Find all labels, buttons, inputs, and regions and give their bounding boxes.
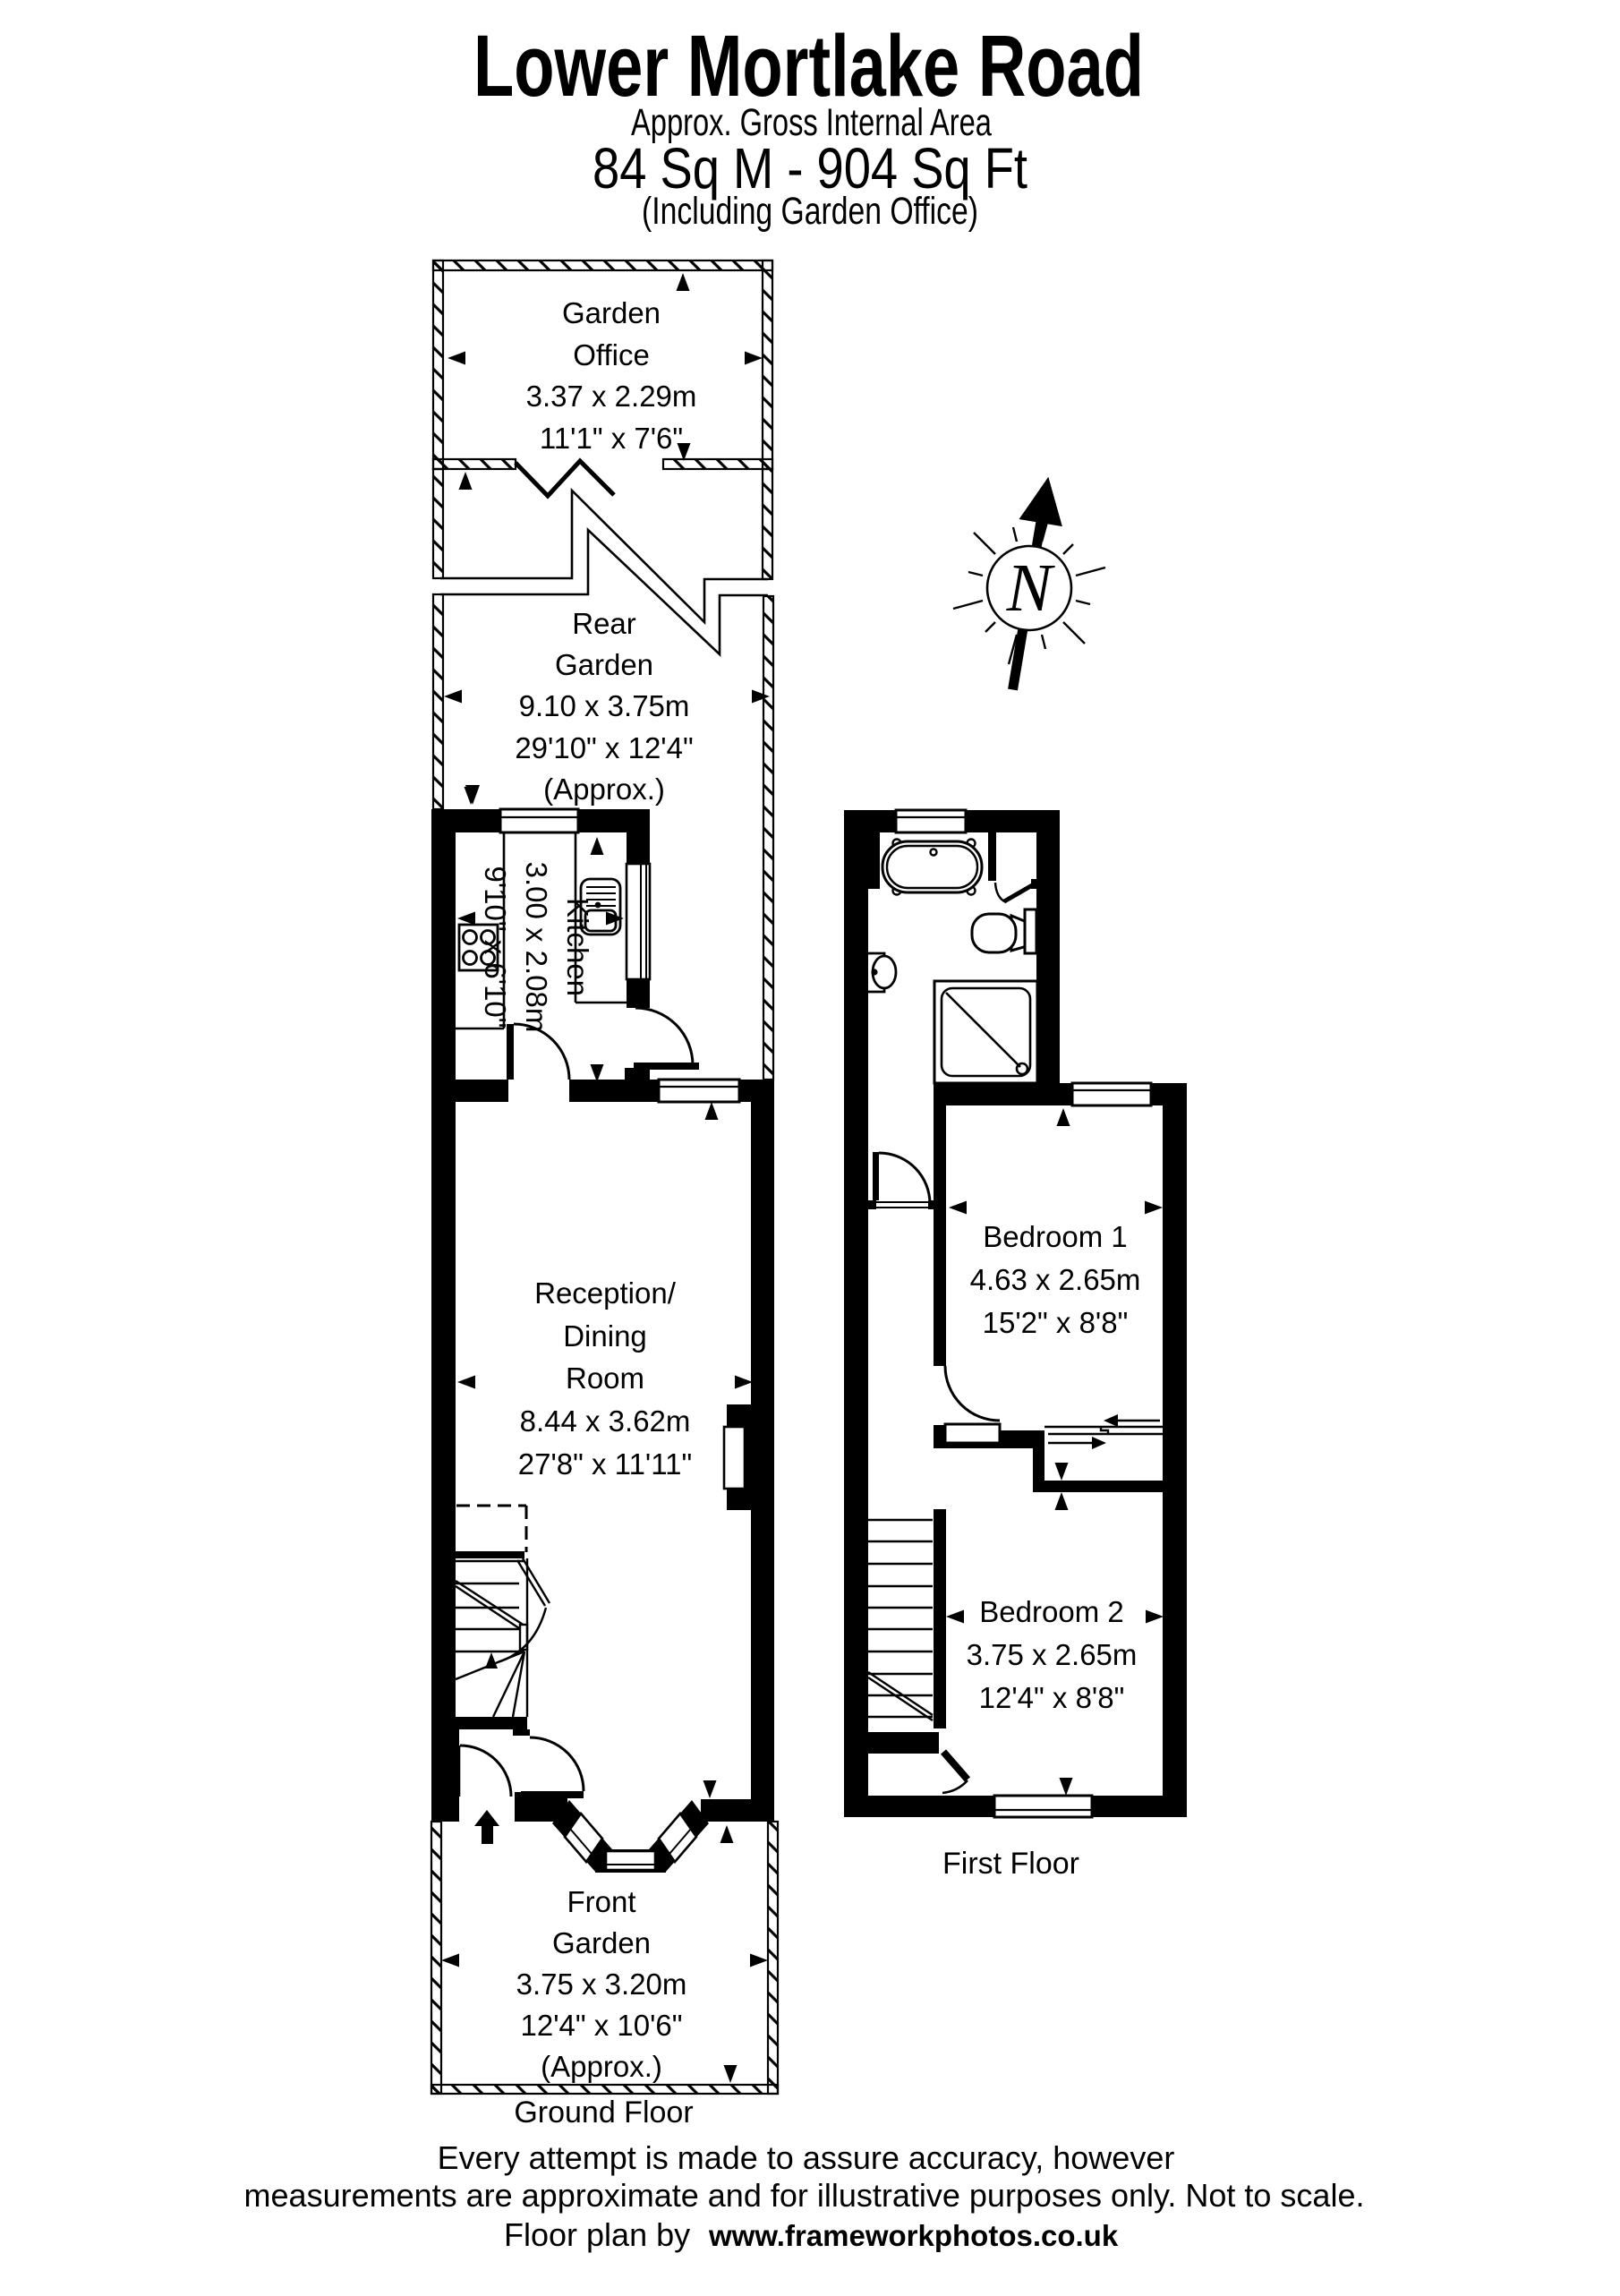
svg-text:(Approx.): (Approx.) (543, 772, 665, 806)
svg-text:Ground Floor: Ground Floor (514, 2095, 693, 2130)
svg-text:Floor plan by: Floor plan by (504, 2216, 690, 2253)
svg-text:measurements are approximate a: measurements are approximate and for ill… (244, 2177, 1365, 2214)
svg-text:First Floor: First Floor (942, 1847, 1079, 1881)
svg-text:Front: Front (567, 1885, 635, 1918)
svg-text:(Approx.): (Approx.) (541, 2050, 662, 2083)
svg-text:27'8" x 11'11": 27'8" x 11'11" (518, 1447, 692, 1481)
svg-text:3.75 x 3.20m: 3.75 x 3.20m (516, 1967, 687, 2001)
svg-text:Garden: Garden (562, 296, 661, 329)
svg-text:3.37 x 2.29m: 3.37 x 2.29m (526, 380, 697, 413)
svg-text:(Including Garden Office): (Including Garden Office) (642, 190, 978, 233)
svg-text:Garden: Garden (552, 1926, 651, 1959)
svg-text:4.63 x 2.65m: 4.63 x 2.65m (970, 1263, 1141, 1296)
svg-text:3.75 x 2.65m: 3.75 x 2.65m (967, 1638, 1138, 1671)
svg-text:Dining: Dining (563, 1319, 647, 1353)
svg-text:3.00 x 2.08m: 3.00 x 2.08m (520, 862, 553, 1033)
svg-text:www.frameworkphotos.co.uk: www.frameworkphotos.co.uk (708, 2219, 1119, 2252)
svg-text:9.10 x 3.75m: 9.10 x 3.75m (519, 689, 690, 722)
svg-text:Every attempt is made to assur: Every attempt is made to assure accuracy… (438, 2139, 1175, 2176)
svg-text:15'2" x 8'8": 15'2" x 8'8" (983, 1306, 1129, 1339)
svg-text:29'10" x 12'4": 29'10" x 12'4" (515, 731, 693, 764)
svg-text:Bedroom 1: Bedroom 1 (983, 1220, 1127, 1253)
svg-text:12'4" x 8'8": 12'4" x 8'8" (979, 1681, 1125, 1714)
svg-text:Office: Office (573, 338, 650, 371)
svg-text:9'10" x 6'10": 9'10" x 6'10" (479, 866, 512, 1029)
svg-text:Bedroom 2: Bedroom 2 (979, 1595, 1123, 1628)
svg-text:11'1" x 7'6": 11'1" x 7'6" (540, 422, 683, 455)
svg-text:Reception/: Reception/ (534, 1276, 677, 1310)
svg-text:Room: Room (566, 1361, 644, 1395)
svg-text:N: N (1006, 551, 1056, 626)
svg-text:Kitchen: Kitchen (561, 898, 594, 996)
svg-text:12'4" x 10'6": 12'4" x 10'6" (521, 2009, 683, 2042)
svg-text:Garden: Garden (555, 648, 653, 681)
svg-text:Rear: Rear (572, 607, 636, 640)
svg-text:8.44 x 3.62m: 8.44 x 3.62m (520, 1404, 691, 1438)
